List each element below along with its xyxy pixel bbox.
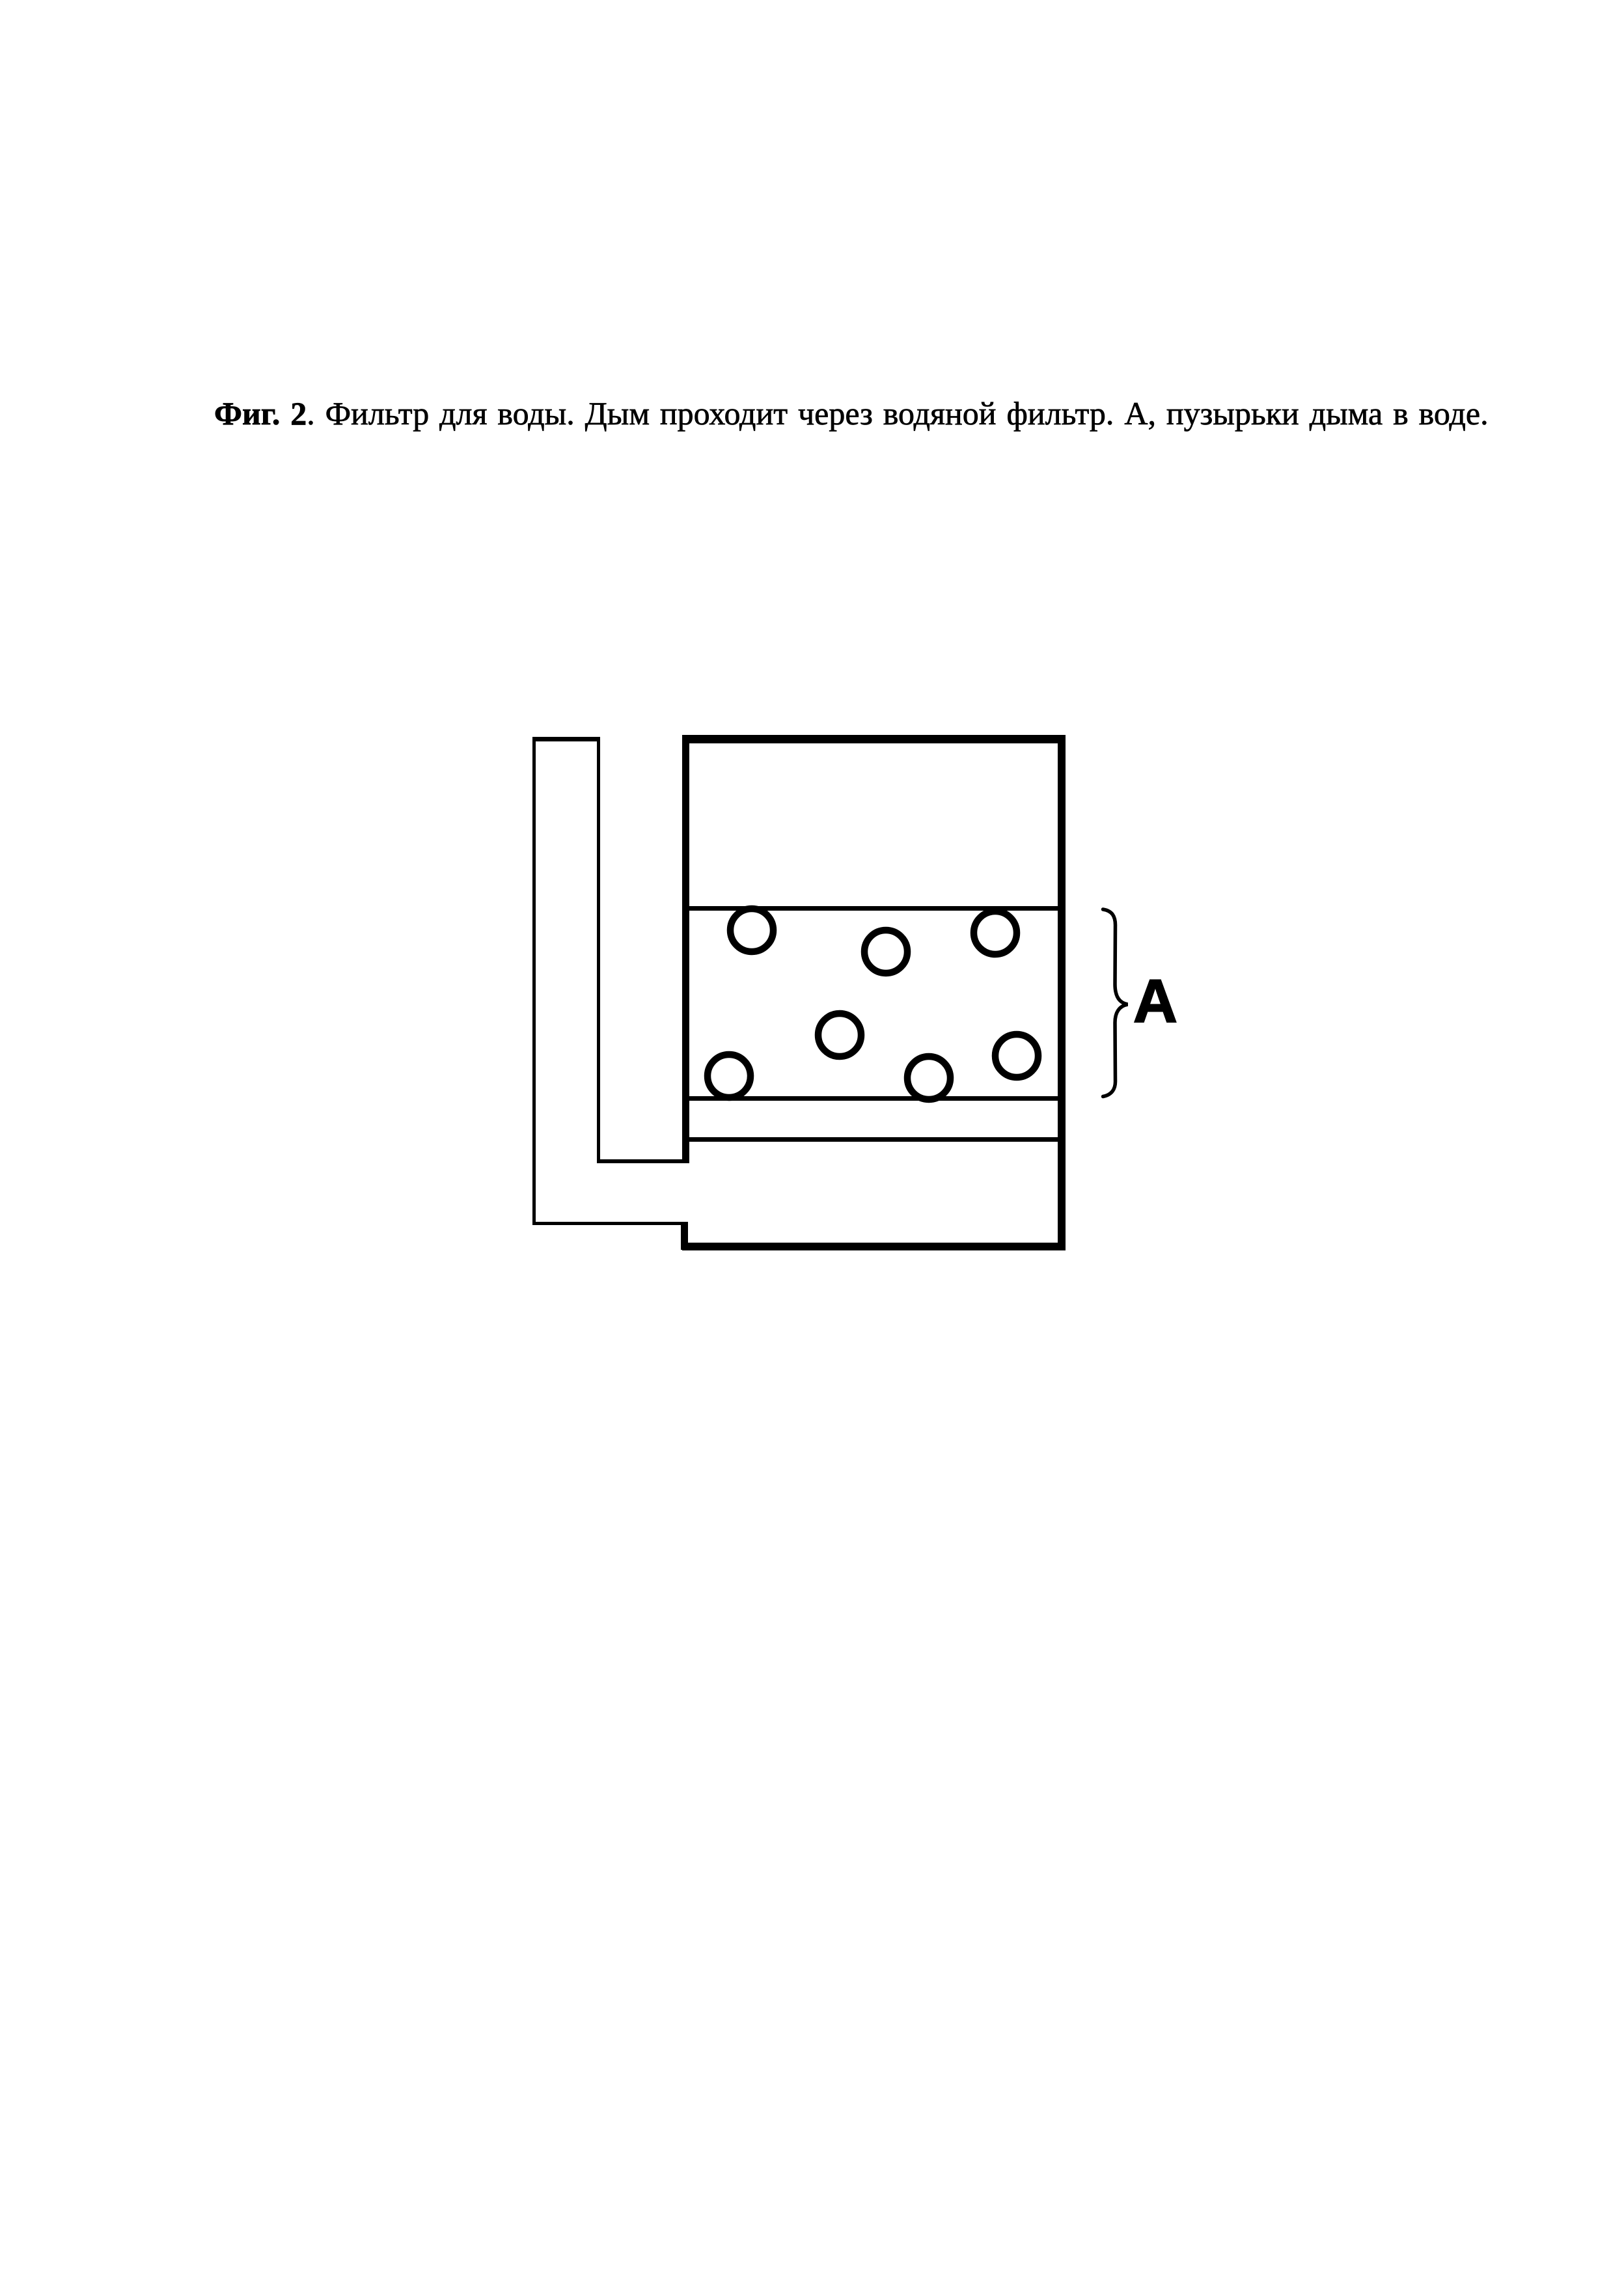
svg-text:А: А — [1133, 967, 1177, 1035]
